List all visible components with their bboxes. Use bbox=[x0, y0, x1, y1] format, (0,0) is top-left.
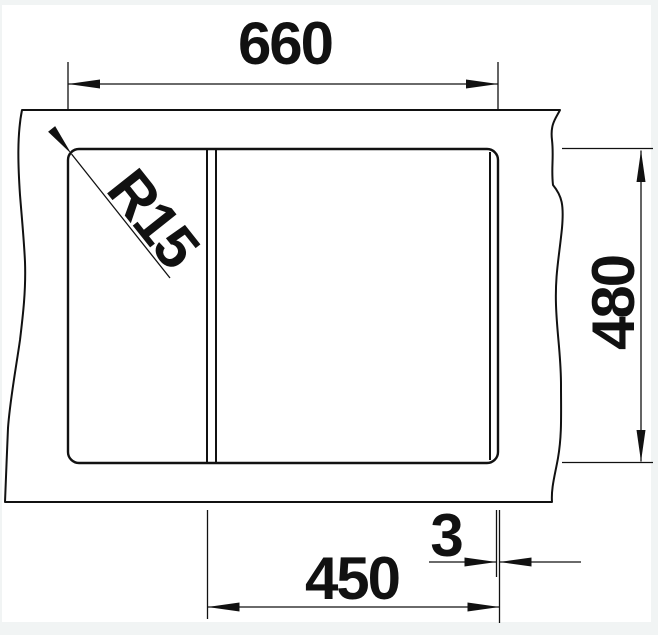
dim-width-label: 660 bbox=[238, 10, 332, 77]
technical-drawing: 660 480 450 3 R15 bbox=[0, 0, 658, 635]
dim-bowl-width-label: 450 bbox=[305, 545, 399, 612]
drawing-canvas: 660 480 450 3 R15 bbox=[0, 0, 658, 635]
dim-depth-label: 480 bbox=[580, 256, 647, 350]
paper-background bbox=[2, 5, 651, 622]
dim-offset-label: 3 bbox=[430, 502, 462, 569]
